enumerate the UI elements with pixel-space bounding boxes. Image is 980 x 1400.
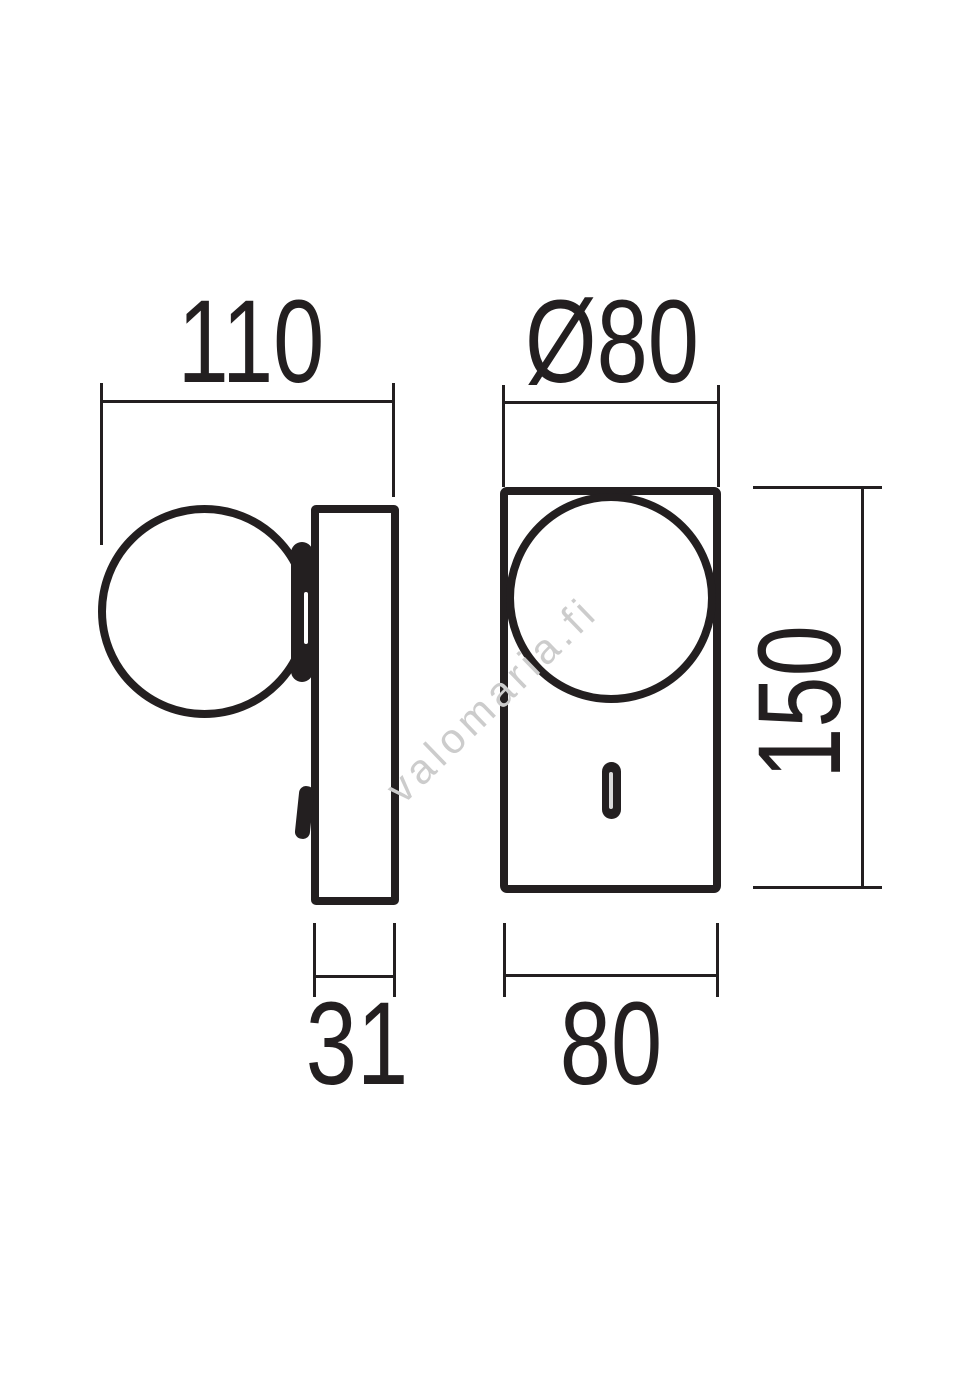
dim-label-80: 80 xyxy=(517,985,704,1103)
dim-label-31: 31 xyxy=(263,985,450,1103)
sphere-outline-side xyxy=(98,505,311,718)
mount-collar xyxy=(291,542,313,682)
switch-slot-slit xyxy=(609,772,613,809)
dim-label-110: 110 xyxy=(157,283,344,401)
tick-80-left xyxy=(503,923,506,997)
mount-collar-highlight xyxy=(304,592,308,644)
dim-label-diameter-80: Ø80 xyxy=(518,283,705,401)
technical-drawing-page: 110 31 Ø80 80 xyxy=(0,0,980,1400)
extension-line-110-left xyxy=(100,383,103,545)
tick-80-right xyxy=(716,923,719,997)
dimension-line-80 xyxy=(503,974,719,977)
dim-label-150: 150 xyxy=(741,585,859,819)
